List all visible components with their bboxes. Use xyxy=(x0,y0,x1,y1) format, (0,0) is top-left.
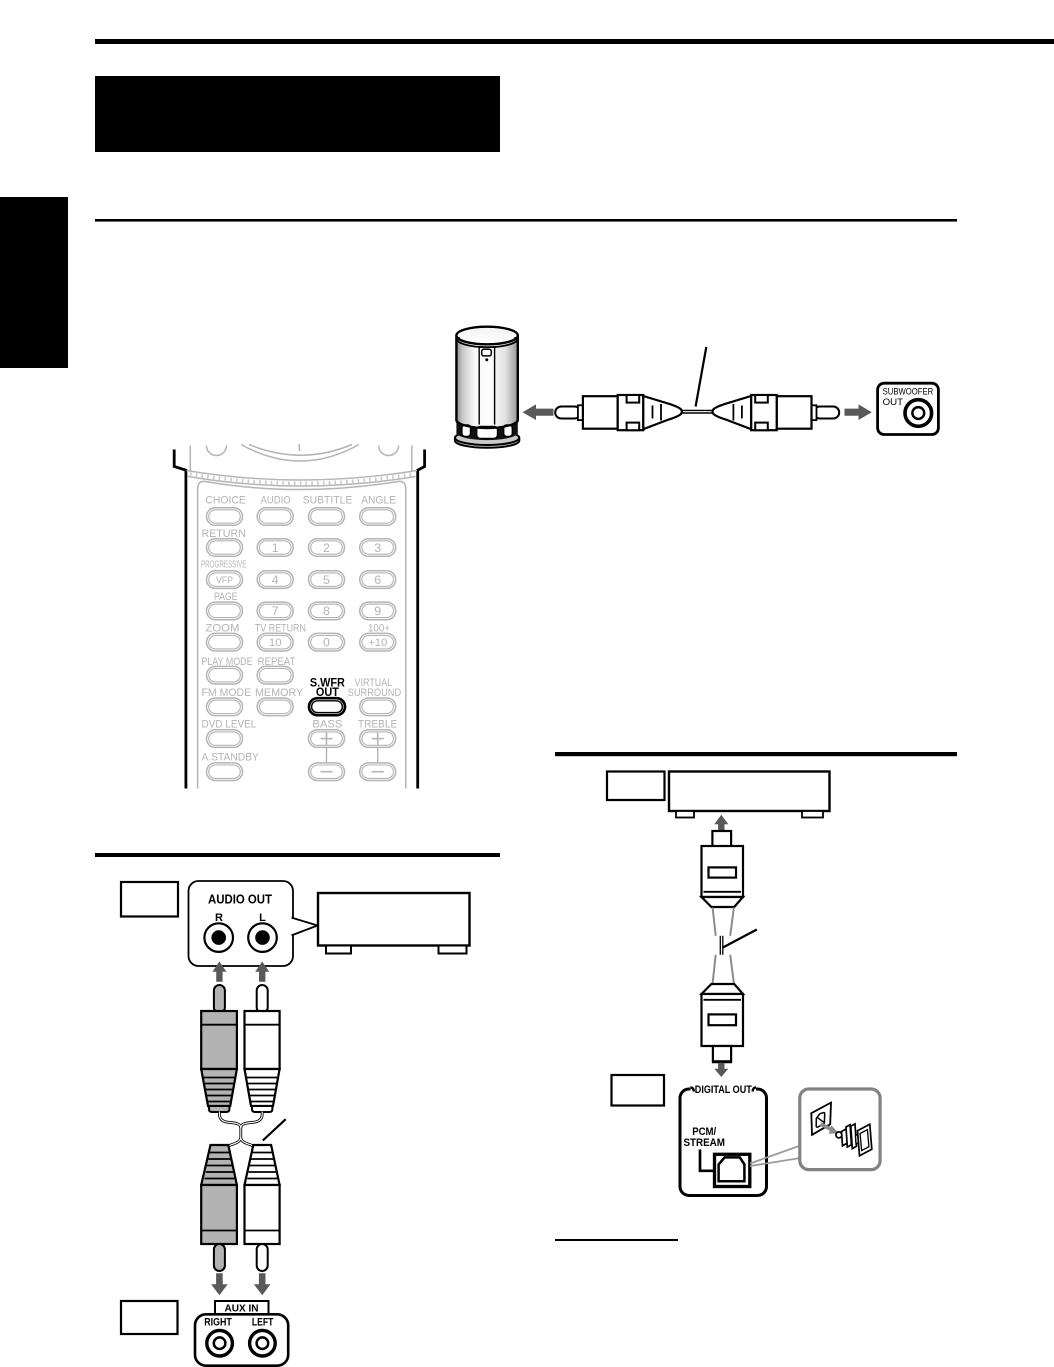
svg-text:+10: +10 xyxy=(368,637,387,649)
svg-text:LEFT: LEFT xyxy=(252,1317,274,1329)
svg-text:CHOICE: CHOICE xyxy=(205,495,246,507)
svg-text:VFP: VFP xyxy=(216,575,233,585)
svg-text:5: 5 xyxy=(323,573,330,587)
svg-text:RIGHT: RIGHT xyxy=(204,1317,232,1329)
svg-text:OUT: OUT xyxy=(883,397,904,408)
svg-text:PAGE: PAGE xyxy=(214,591,238,603)
svg-text:6: 6 xyxy=(374,573,381,587)
svg-text:REPEAT: REPEAT xyxy=(258,656,296,668)
svg-text:7: 7 xyxy=(272,604,279,618)
svg-text:FM MODE: FM MODE xyxy=(202,687,252,699)
svg-text:BASS: BASS xyxy=(312,718,342,730)
svg-text:1: 1 xyxy=(272,541,279,555)
svg-text:DVD LEVEL: DVD LEVEL xyxy=(202,718,257,730)
svg-text:A.STANDBY: A.STANDBY xyxy=(202,752,260,764)
svg-text:3: 3 xyxy=(374,541,381,555)
svg-text:SUBTITLE: SUBTITLE xyxy=(303,495,353,507)
svg-text:PROGRESSIVE: PROGRESSIVE xyxy=(201,560,247,571)
svg-text:OUT: OUT xyxy=(316,685,340,699)
svg-text:RETURN: RETURN xyxy=(202,528,246,540)
svg-text:MEMORY: MEMORY xyxy=(255,687,304,699)
svg-text:TREBLE: TREBLE xyxy=(358,718,397,730)
svg-text:L: L xyxy=(259,912,266,924)
svg-text:SURROUND: SURROUND xyxy=(348,687,402,699)
svg-text:PCM/: PCM/ xyxy=(692,1126,716,1138)
svg-text:100+: 100+ xyxy=(368,623,390,635)
svg-text:8: 8 xyxy=(323,604,330,618)
svg-text:R: R xyxy=(215,912,223,924)
svg-text:9: 9 xyxy=(374,604,381,618)
svg-text:STREAM: STREAM xyxy=(683,1137,725,1149)
svg-text:2: 2 xyxy=(323,541,330,555)
svg-text:0: 0 xyxy=(323,636,330,650)
svg-text:4: 4 xyxy=(272,573,279,587)
svg-text:AUX IN: AUX IN xyxy=(225,1304,259,1315)
svg-text:PLAY MODE: PLAY MODE xyxy=(202,656,253,668)
svg-text:10: 10 xyxy=(269,637,282,649)
svg-text:AUDIO: AUDIO xyxy=(261,495,291,507)
svg-text:AUDIO OUT: AUDIO OUT xyxy=(208,893,272,907)
svg-text:ZOOM: ZOOM xyxy=(205,623,239,635)
svg-text:TV RETURN: TV RETURN xyxy=(255,623,306,635)
svg-text:DIGITAL OUT: DIGITAL OUT xyxy=(695,1084,752,1096)
svg-text:SUBWOOFER: SUBWOOFER xyxy=(883,386,934,397)
svg-text:ANGLE: ANGLE xyxy=(361,495,396,507)
